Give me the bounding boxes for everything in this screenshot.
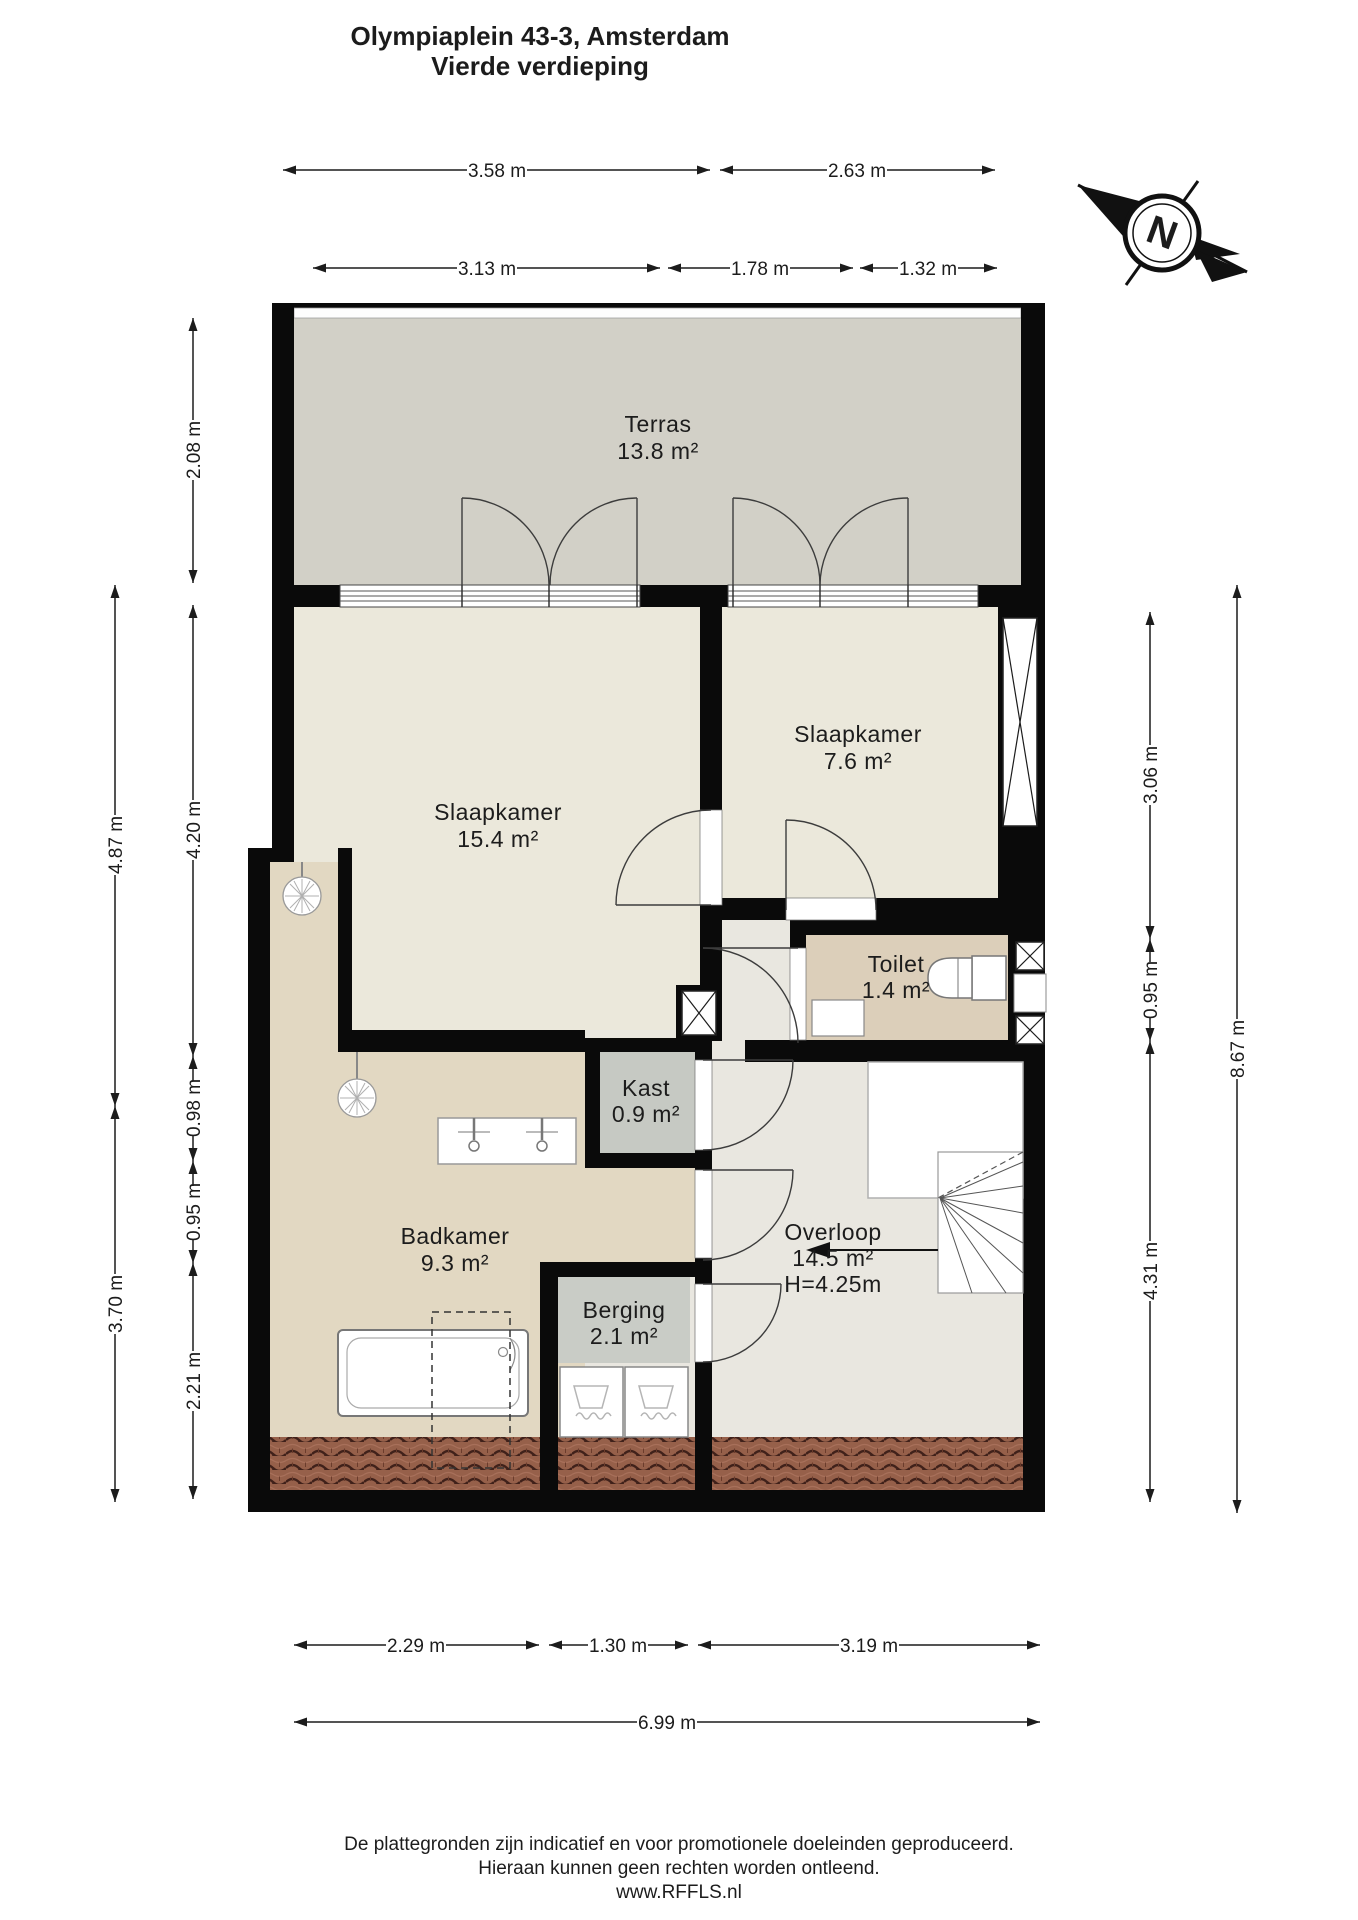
dim-label: 1.30 m	[589, 1636, 647, 1657]
dim-label: 0.98 m	[184, 1079, 205, 1137]
room-area-badkamer: 9.3 m²	[421, 1250, 489, 1276]
shaft-center	[682, 991, 716, 1035]
room-label-overloop: Overloop	[784, 1219, 881, 1245]
doorway-slaapkamer-klein	[786, 898, 876, 920]
room-label-toilet: Toilet	[868, 951, 925, 977]
toilet-fixture	[928, 956, 1006, 1000]
toilet-cistern-box	[1014, 974, 1046, 1012]
room-area-toilet: 1.4 m²	[862, 977, 930, 1003]
room-label-slaapkamer-groot: Slaapkamer	[434, 799, 562, 825]
dim-label: 4.87 m	[106, 816, 127, 874]
room-area-berging: 2.1 m²	[590, 1323, 658, 1349]
dim-label: 2.21 m	[184, 1352, 205, 1410]
dim-label: 1.32 m	[899, 259, 957, 280]
dim-label: 3.70 m	[106, 1275, 127, 1333]
room-badkamer-ext	[585, 1168, 695, 1262]
compass-north-icon: N	[1078, 181, 1247, 285]
dim-label: 4.20 m	[184, 801, 205, 859]
room-area-slaapkamer-klein: 7.6 m²	[824, 748, 892, 774]
terrace-railing	[294, 308, 1021, 318]
room-area-terras: 13.8 m²	[617, 438, 698, 464]
doorway-badkamer	[695, 1170, 712, 1258]
room-label-berging: Berging	[583, 1297, 666, 1323]
footer-disclaimer-2: Hieraan kunnen geen rechten worden ontle…	[478, 1858, 879, 1879]
dryer-icon	[625, 1367, 688, 1437]
doorway-toilet	[790, 948, 806, 1040]
doorway-slaapkamer-groot	[700, 810, 722, 905]
vent-bottom-icon	[1016, 1016, 1044, 1044]
washer-icon	[560, 1367, 623, 1437]
doorway-berging	[695, 1284, 712, 1362]
room-area-slaapkamer-groot: 15.4 m²	[457, 826, 538, 852]
footer: De plattegronden zijn indicatief en voor…	[344, 1834, 1014, 1903]
dim-label: 3.58 m	[468, 161, 526, 182]
footer-disclaimer-1: De plattegronden zijn indicatief en voor…	[344, 1834, 1014, 1855]
floorplan-canvas: Olympiaplein 43-3, Amsterdam Vierde verd…	[0, 0, 1358, 1920]
room-label-terras: Terras	[625, 411, 692, 437]
room-label-badkamer: Badkamer	[401, 1223, 510, 1249]
roof-tiles-strip	[270, 1437, 1023, 1490]
floorplan-page: Olympiaplein 43-3, Amsterdam Vierde verd…	[0, 0, 1358, 1920]
vent-top-icon	[1016, 942, 1044, 970]
dim-label: 2.29 m	[387, 1636, 445, 1657]
dim-label: 3.13 m	[458, 259, 516, 280]
room-height-overloop: H=4.25m	[784, 1271, 881, 1297]
dim-label: 2.63 m	[828, 161, 886, 182]
page-subtitle: Vierde verdieping	[431, 51, 649, 81]
dim-label: 4.31 m	[1141, 1242, 1162, 1300]
dim-label: 0.95 m	[184, 1183, 205, 1241]
room-area-overloop: 14.5 m²	[792, 1245, 873, 1271]
dim-label: 2.08 m	[184, 421, 205, 479]
vanity-double-sink	[438, 1118, 576, 1164]
dim-label: 3.19 m	[840, 1636, 898, 1657]
dim-label: 0.95 m	[1141, 961, 1162, 1019]
shaft-right	[1003, 618, 1037, 826]
page-title: Olympiaplein 43-3, Amsterdam	[350, 21, 729, 51]
dim-label: 8.67 m	[1228, 1020, 1249, 1078]
room-label-slaapkamer-klein: Slaapkamer	[794, 721, 922, 747]
dim-label: 6.99 m	[638, 1713, 696, 1734]
window-band-left	[340, 585, 640, 607]
dim-label: 1.78 m	[731, 259, 789, 280]
footer-website: www.RFFLS.nl	[615, 1882, 742, 1903]
room-label-kast: Kast	[622, 1075, 670, 1101]
window-band-right	[728, 585, 978, 607]
doorway-kast	[695, 1060, 712, 1150]
toilet-basin	[812, 1000, 864, 1036]
bathtub	[338, 1330, 528, 1416]
room-area-kast: 0.9 m²	[612, 1101, 680, 1127]
dim-label: 3.06 m	[1141, 746, 1162, 804]
